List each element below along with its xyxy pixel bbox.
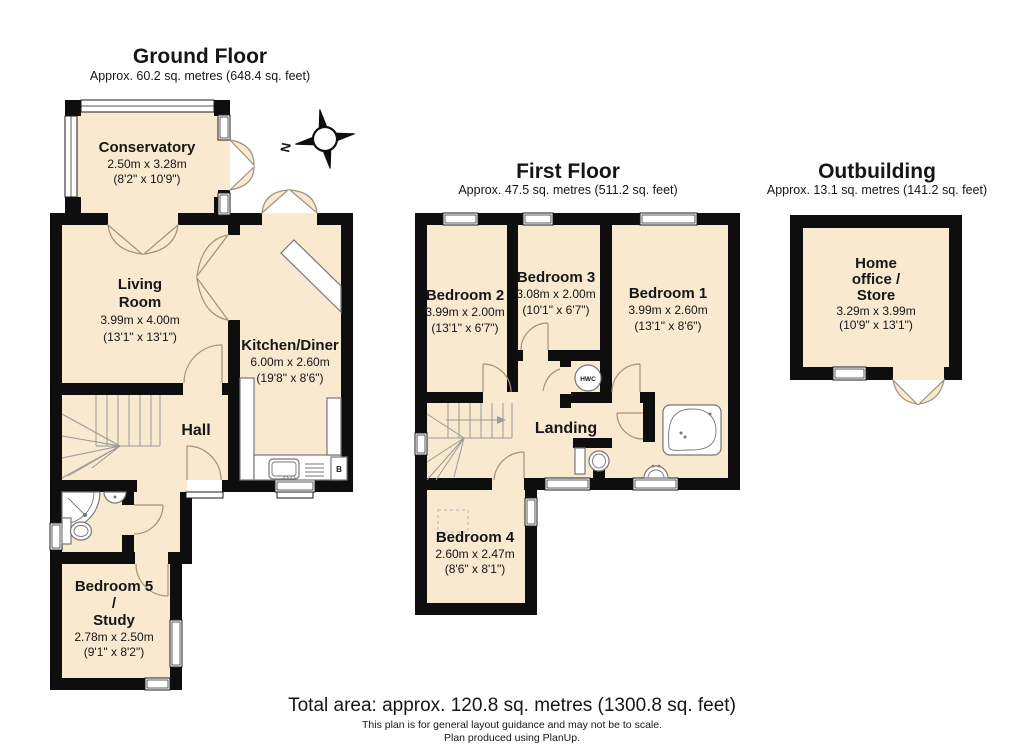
floorplan-canvas: Ground Floor Approx. 60.2 sq. metres (64… xyxy=(0,0,1024,745)
room-label-bedroom5-1: Bedroom 5 xyxy=(75,578,153,595)
room-dimsft-bedroom4: (8'6" x 8'1") xyxy=(445,562,505,576)
outbuilding-doors xyxy=(893,380,944,404)
room-dimsft-conservatory: (8'2" x 10'9") xyxy=(113,172,180,186)
room-label-home-office-3: Store xyxy=(857,287,895,304)
disclaimer-text: This plan is for general layout guidance… xyxy=(362,719,662,731)
room-dimsft-home-office: (10'9" x 13'1") xyxy=(839,318,913,332)
room-label-bedroom5-3: Study xyxy=(93,612,135,629)
credit-text: Plan produced using PlanUp. xyxy=(444,732,580,744)
room-dims-bedroom4: 2.60m x 2.47m xyxy=(435,547,514,561)
hwc-label: HWC xyxy=(580,376,596,383)
boiler-label: B xyxy=(336,465,342,474)
outbuilding-plan: Outbuilding Approx. 13.1 sq. metres (141… xyxy=(767,160,987,404)
room-label-kitchen-diner: Kitchen/Diner xyxy=(241,337,339,354)
north-label: N xyxy=(277,141,294,153)
first-floor-subtitle: Approx. 47.5 sq. metres (511.2 sq. feet) xyxy=(458,183,677,197)
room-label-bedroom2: Bedroom 2 xyxy=(426,287,504,304)
boiler-icon: B xyxy=(331,457,347,480)
room-label-bedroom4: Bedroom 4 xyxy=(436,529,515,546)
room-dims-bedroom2: 3.99m x 2.00m xyxy=(425,305,504,319)
room-dims-living-room: 3.99m x 4.00m xyxy=(100,313,179,327)
room-dimsft-kitchen-diner: (19'8" x 8'6") xyxy=(256,371,323,385)
room-dims-home-office: 3.29m x 3.99m xyxy=(836,304,915,318)
room-dimsft-bedroom5: (9'1" x 8'2") xyxy=(84,645,144,659)
room-dims-conservatory: 2.50m x 3.28m xyxy=(107,157,186,171)
floorplan-page: Ground Floor Approx. 60.2 sq. metres (64… xyxy=(0,0,1024,745)
room-dimsft-living-room: (13'1" x 13'1") xyxy=(103,330,177,344)
room-label-living-room-1: Living xyxy=(118,276,162,293)
total-area-text: Total area: approx. 120.8 sq. metres (13… xyxy=(288,695,736,716)
ground-floor-subtitle: Approx. 60.2 sq. metres (648.4 sq. feet) xyxy=(90,69,310,83)
first-floor-plan: First Floor Approx. 47.5 sq. metres (511… xyxy=(415,160,740,615)
room-label-home-office-1: Home xyxy=(855,255,897,272)
ground-floor-title: Ground Floor xyxy=(133,45,267,68)
room-dimsft-bedroom1: (13'1" x 8'6") xyxy=(634,319,701,333)
footer: Total area: approx. 120.8 sq. metres (13… xyxy=(288,695,736,744)
bath-icon xyxy=(663,405,721,455)
room-label-home-office-2: office / xyxy=(852,271,901,288)
room-label-bedroom1: Bedroom 1 xyxy=(629,285,707,302)
compass-rose: N xyxy=(277,104,359,174)
room-dims-kitchen-diner: 6.00m x 2.60m xyxy=(250,355,329,369)
room-dimsft-bedroom3: (10'1" x 6'7") xyxy=(522,303,589,317)
first-floor-title: First Floor xyxy=(516,160,620,183)
room-dims-bedroom3: 3.08m x 2.00m xyxy=(516,287,595,301)
room-dims-bedroom5: 2.78m x 2.50m xyxy=(74,630,153,644)
room-label-living-room-2: Room xyxy=(119,294,162,311)
room-dimsft-bedroom2: (13'1" x 6'7") xyxy=(431,321,498,335)
outbuilding-title: Outbuilding xyxy=(818,160,936,183)
room-label-conservatory: Conservatory xyxy=(99,139,196,156)
outbuilding-subtitle: Approx. 13.1 sq. metres (141.2 sq. feet) xyxy=(767,183,987,197)
room-label-hall: Hall xyxy=(181,422,210,439)
hwc-cylinder-icon: HWC xyxy=(575,365,601,391)
room-label-bedroom3: Bedroom 3 xyxy=(517,269,595,286)
room-dims-bedroom1: 3.99m x 2.60m xyxy=(628,303,707,317)
room-label-landing: Landing xyxy=(535,420,597,437)
